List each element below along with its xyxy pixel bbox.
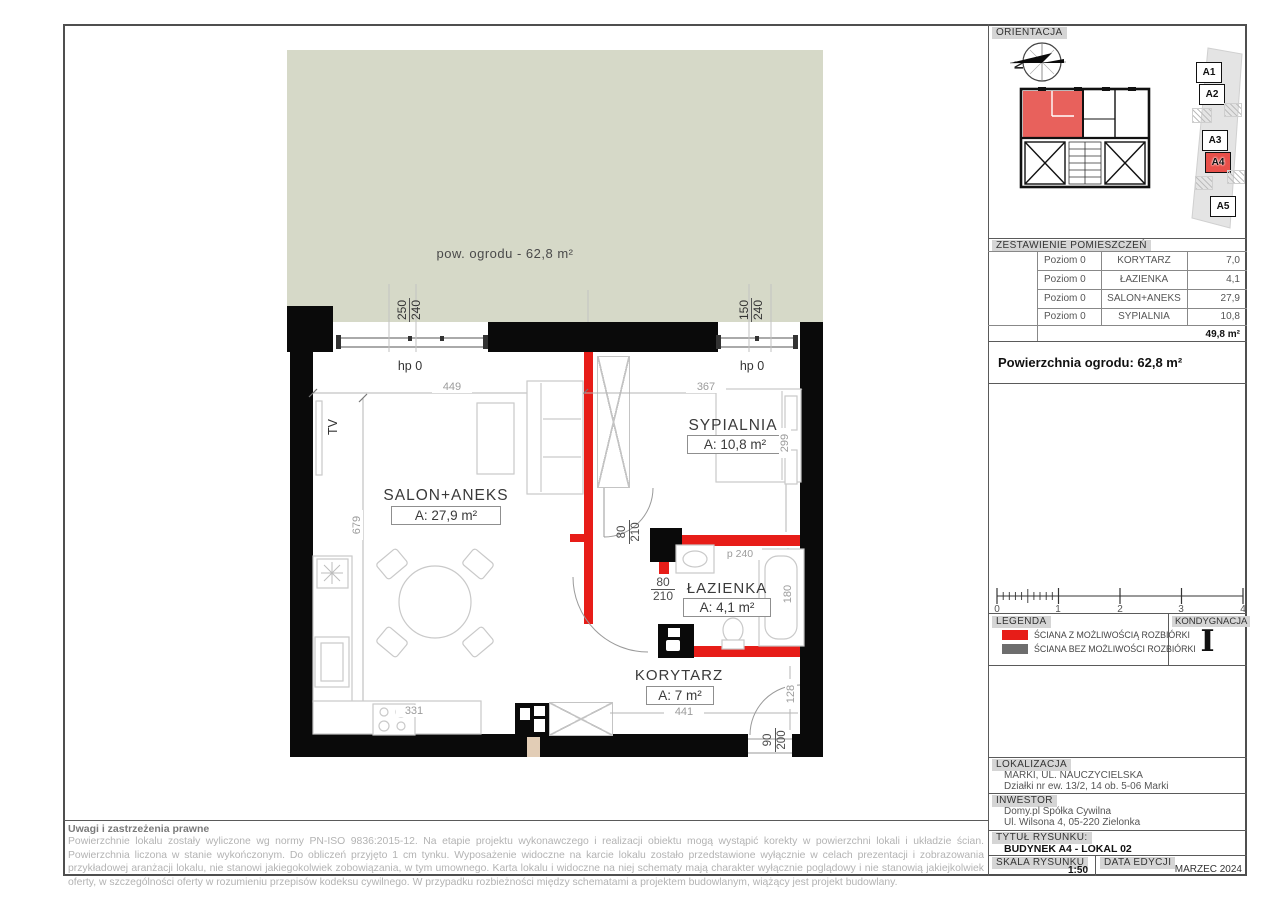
schedule-room: SYPIALNIA [1101, 311, 1187, 323]
location-line2: Działki nr ew. 13/2, 14 ob. 5-06 Marki [1004, 781, 1169, 792]
dim-299: 299 [779, 428, 791, 458]
site-unit-a3: A3 [1202, 130, 1228, 151]
scale-tick-4: 4 [1233, 604, 1253, 615]
schedule-room: ŁAZIENKA [1101, 274, 1187, 286]
schedule-area: 4,1 [1187, 274, 1240, 286]
legal-top-line [63, 820, 988, 821]
legend-header: LEGENDA [992, 616, 1051, 628]
tv-label: TV [326, 412, 340, 442]
door-dim-bathroom: 80 210 [646, 576, 680, 603]
window-dim-right: 150 240 [728, 288, 774, 332]
scale-tick-1: 1 [1048, 604, 1068, 615]
table-line [1037, 308, 1247, 309]
schedule-level: Poziom 0 [1044, 274, 1086, 286]
compass-icon [1006, 36, 1068, 88]
legend-item-red: ŚCIANA Z MOŻLIWOŚCIĄ ROZBIÓRKI [1034, 630, 1190, 640]
section-line [988, 793, 1247, 794]
building-floor-miniplan [1018, 86, 1152, 192]
scale-tick-0: 0 [987, 604, 1007, 615]
scale-value: 1:50 [1040, 865, 1088, 876]
schedule-total: 49,8 m² [1140, 329, 1240, 341]
section-line [988, 830, 1247, 831]
titleblock-divider [988, 24, 989, 876]
site-unit-a1: A1 [1196, 62, 1222, 83]
hp0-left: hp 0 [385, 359, 435, 373]
legal-body: Powierzchnie lokalu zostały wyliczone wg… [68, 835, 984, 890]
schedule-area: 10,8 [1187, 311, 1240, 323]
table-line [1037, 289, 1247, 290]
room-area-lazienka: A: 4,1 m² [683, 598, 771, 617]
room-area-salon: A: 27,9 m² [391, 506, 501, 525]
window-dim-left: 250 240 [386, 288, 432, 332]
investor-line1: Domy.pl Spółka Cywilna [1004, 806, 1111, 817]
table-line [1037, 251, 1038, 341]
room-area-korytarz: A: 7 m² [646, 686, 714, 705]
door-dim-bedroom: 80 210 [606, 510, 652, 554]
legend-swatch-red [1002, 630, 1028, 640]
section-line [988, 238, 1247, 239]
site-hatch [1195, 176, 1213, 190]
location-line1: MARKI, UL. NAUCZYCIELSKA [1004, 770, 1143, 781]
schedule-room: SALON+ANEKS [1101, 293, 1187, 305]
garden-total: Powierzchnia ogrodu: 62,8 m² [998, 355, 1182, 370]
room-area-sypialnia: A: 10,8 m² [687, 435, 783, 454]
schedule-level: Poziom 0 [1044, 311, 1086, 323]
dim-p240: p 240 [718, 548, 762, 560]
section-line [988, 383, 1247, 384]
scale-tick-2: 2 [1110, 604, 1130, 615]
schedule-area: 27,9 [1187, 293, 1240, 305]
skala-divider [1095, 855, 1096, 876]
site-hatch [1227, 170, 1245, 184]
site-unit-a5: A5 [1210, 196, 1236, 217]
scale-tick-3: 3 [1171, 604, 1191, 615]
legal-title: Uwagi i zastrzeżenia prawne [68, 823, 209, 835]
schedule-level: Poziom 0 [1044, 293, 1086, 305]
dim-331: 331 [396, 705, 432, 717]
section-line [988, 341, 1247, 342]
scale-bar [992, 582, 1248, 606]
section-line [988, 855, 1247, 856]
schedule-level: Poziom 0 [1044, 255, 1086, 267]
schedule-area: 7,0 [1187, 255, 1240, 267]
floor-plan-sheet: pow. ogrodu - 62,8 m² [0, 0, 1280, 904]
dim-128: 128 [785, 679, 797, 709]
table-line [988, 325, 1247, 326]
room-label-korytarz: KORYTARZ [599, 667, 759, 684]
dim-367: 367 [686, 381, 726, 393]
dim-180: 180 [782, 579, 794, 609]
schedule-room: KORYTARZ [1101, 255, 1187, 267]
table-line [988, 251, 1247, 252]
door-dim-entry: 90 200 [752, 718, 798, 762]
dim-449: 449 [432, 381, 472, 393]
hp0-right: hp 0 [727, 359, 777, 373]
table-line [1037, 270, 1247, 271]
investor-line2: Ul. Wilsona 4, 05-220 Zielonka [1004, 817, 1140, 828]
storey-value: I [1168, 624, 1247, 659]
section-line [988, 757, 1247, 758]
section-line [988, 665, 1247, 666]
room-label-salon: SALON+ANEKS [346, 487, 546, 505]
site-hatch [1224, 103, 1242, 117]
edition-date-value: MARZEC 2024 [1160, 864, 1242, 875]
dim-441: 441 [664, 706, 704, 718]
site-hatch [1192, 108, 1212, 123]
drawing-title-value: BUDYNEK A4 - LOKAL 02 [1004, 843, 1132, 855]
site-unit-a2: A2 [1199, 84, 1225, 105]
legend-swatch-gray [1002, 644, 1028, 654]
dim-679: 679 [351, 510, 363, 540]
